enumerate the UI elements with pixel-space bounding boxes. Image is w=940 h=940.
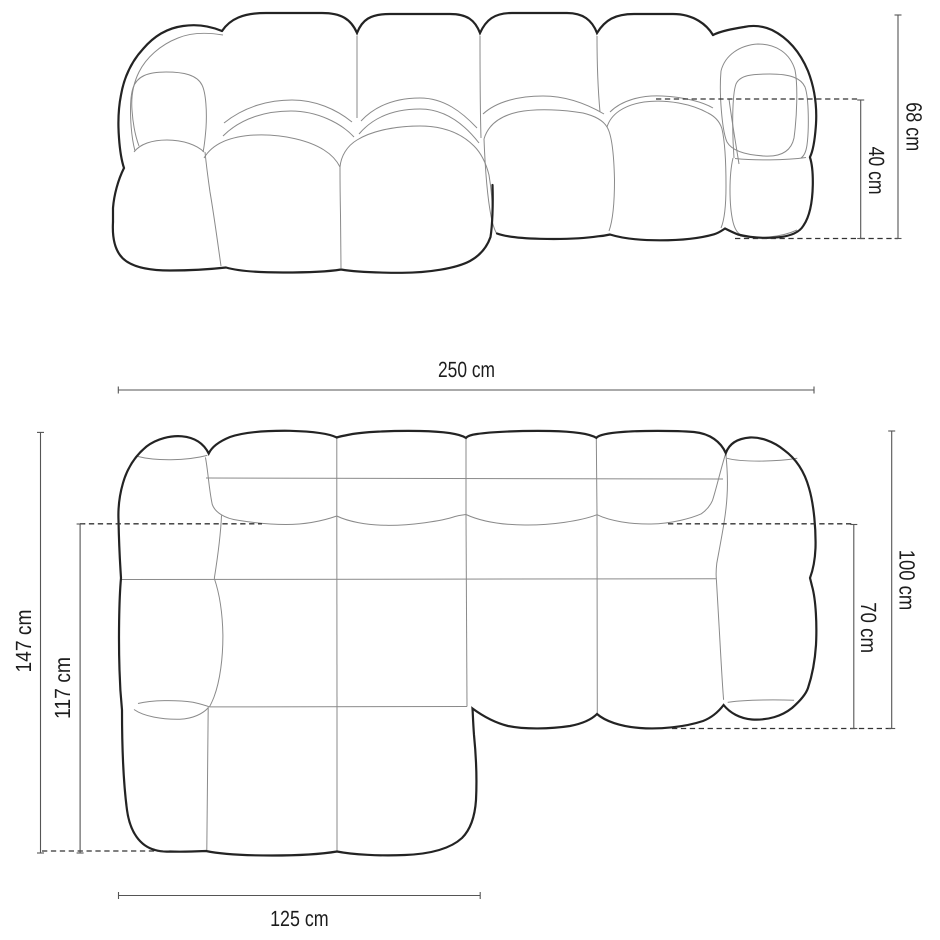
svg-text:40 cm: 40 cm	[864, 147, 889, 195]
svg-text:147 cm: 147 cm	[11, 610, 36, 673]
svg-text:125 cm: 125 cm	[270, 906, 329, 931]
svg-text:70 cm: 70 cm	[856, 602, 881, 653]
svg-text:100 cm: 100 cm	[895, 550, 920, 611]
svg-text:68 cm: 68 cm	[902, 102, 927, 151]
svg-text:250 cm: 250 cm	[438, 357, 495, 382]
svg-text:117 cm: 117 cm	[50, 657, 75, 719]
